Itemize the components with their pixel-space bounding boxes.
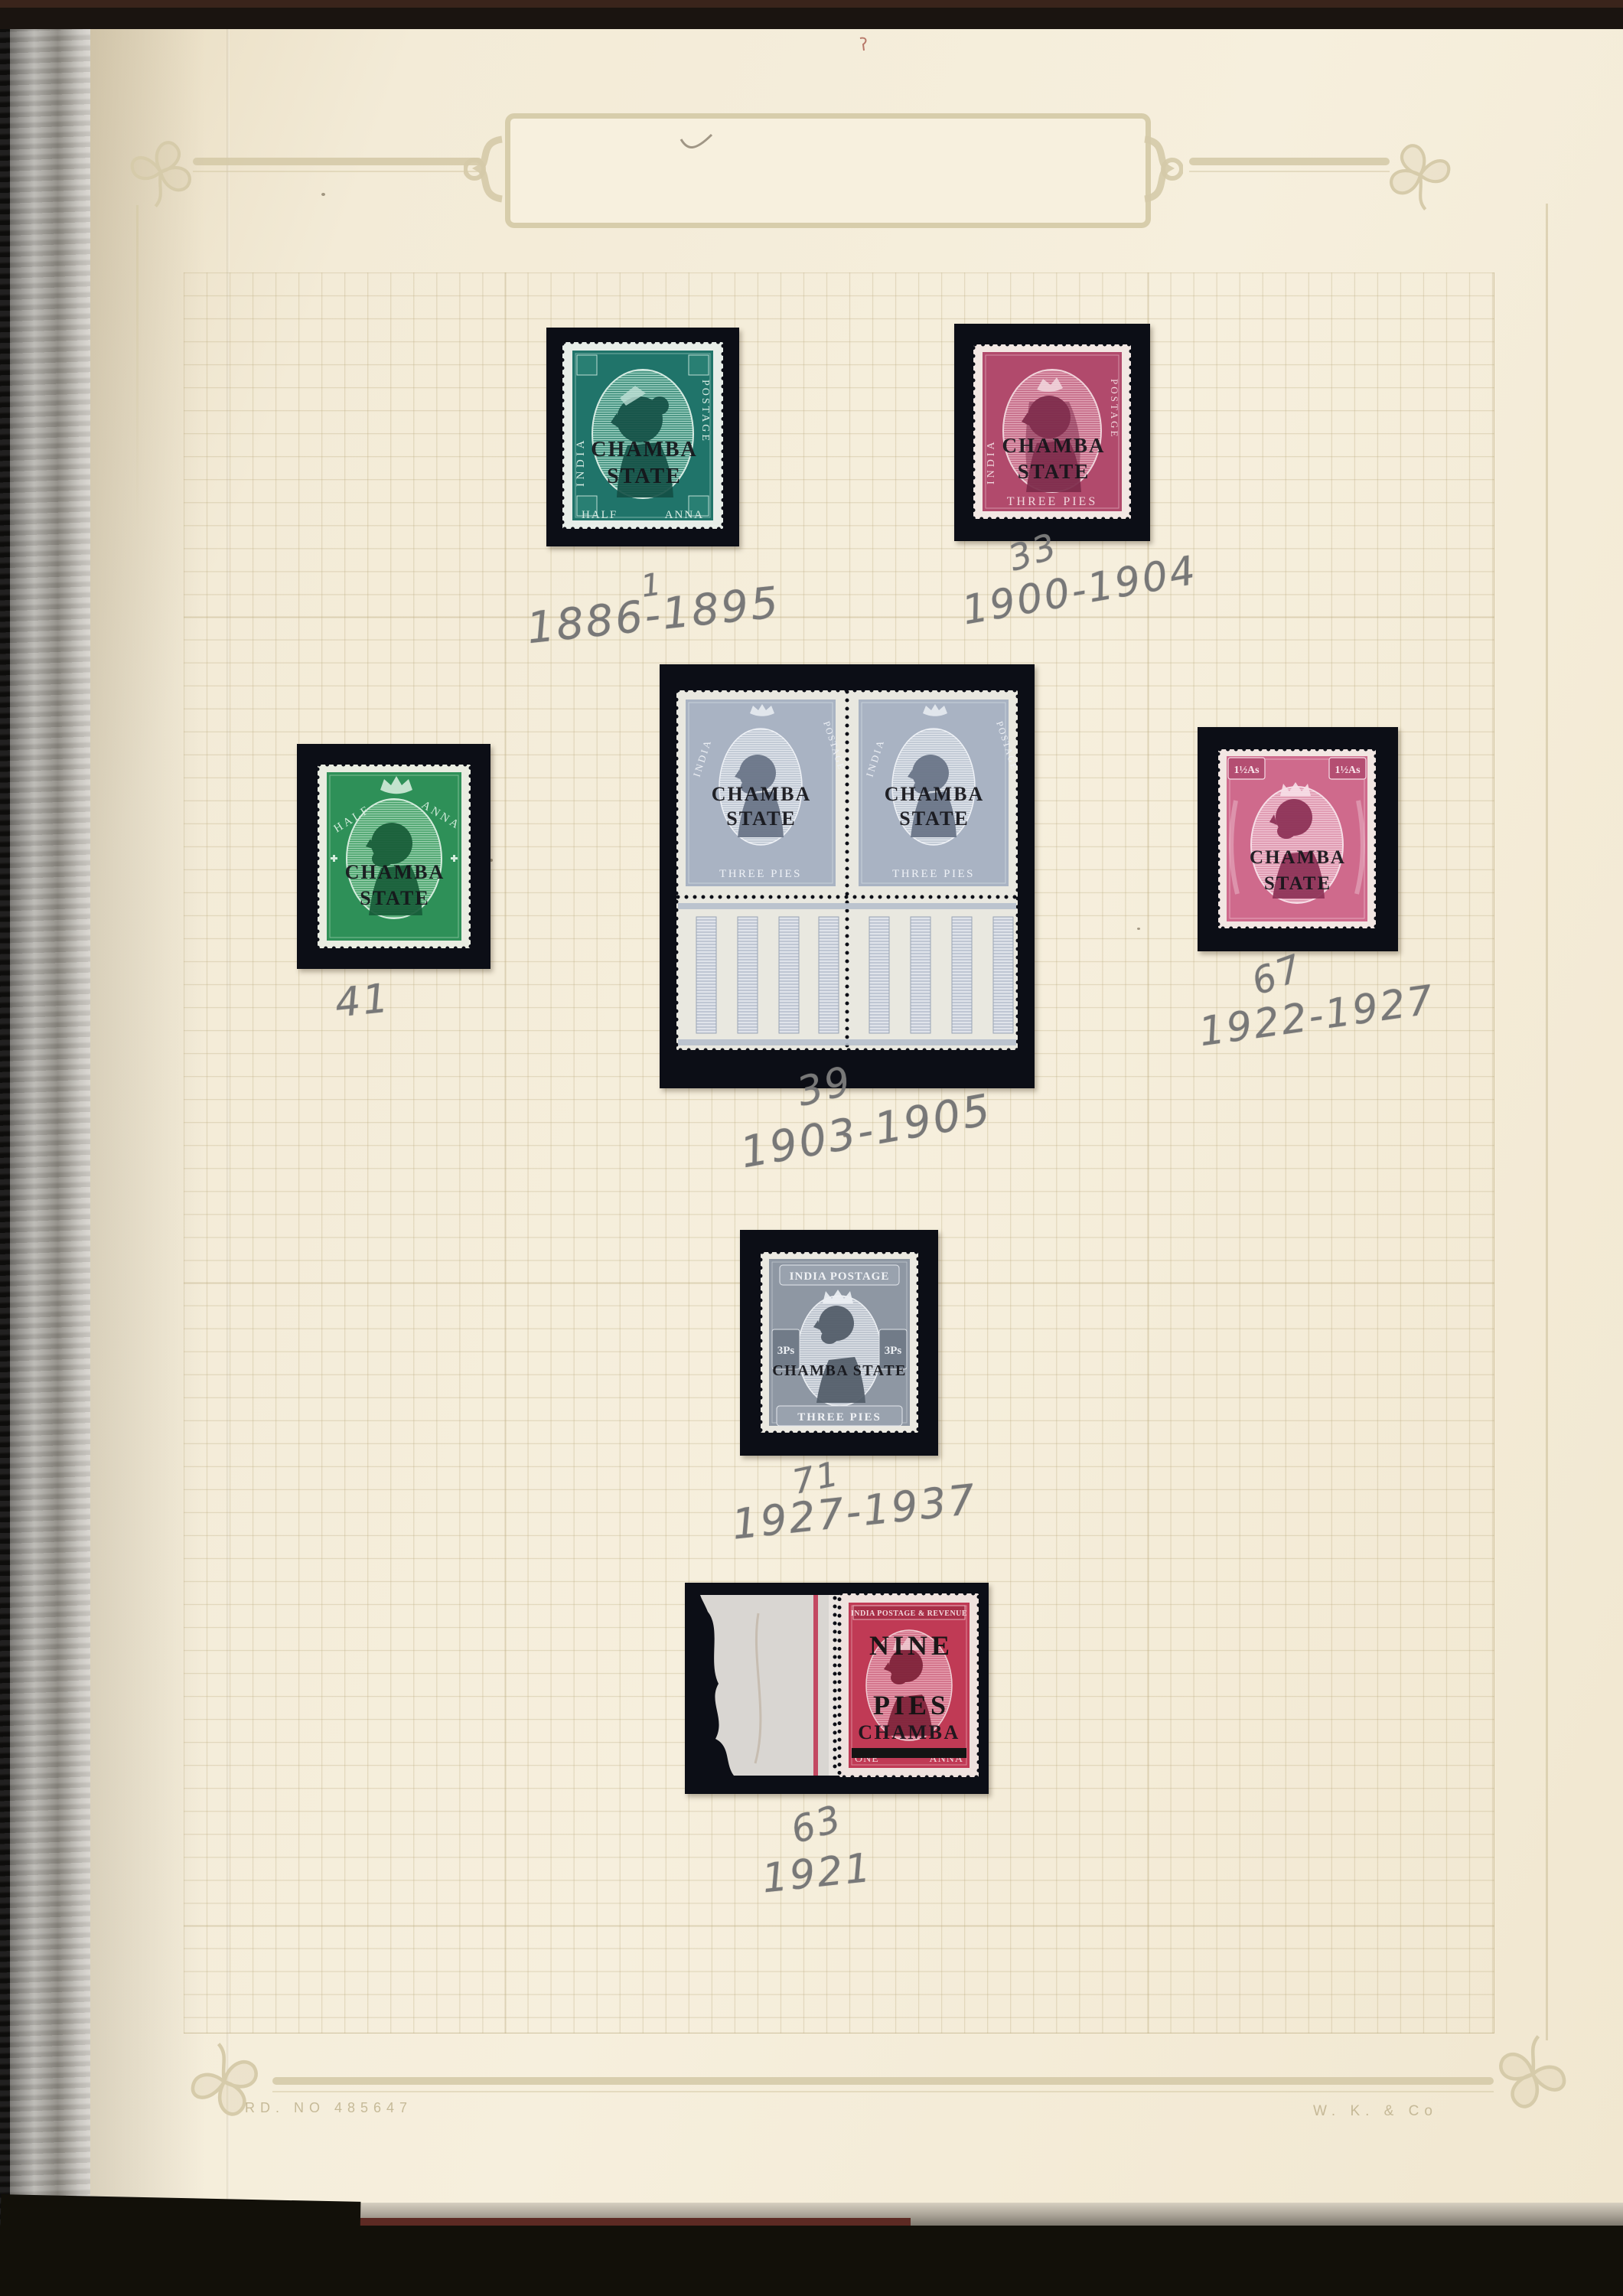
stamp-qv-half-anna: INDIA POSTAGE HALF ANNA CHAMBA STATE (560, 340, 725, 531)
stamp-text-side-left: INDIA (575, 437, 587, 487)
overprint-chamba: CHAMBA (885, 783, 984, 805)
stamp-text-bottom-left: HALF (582, 509, 618, 521)
stamp-text-top: INDIA POSTAGE & REVENUE (851, 1609, 967, 1618)
pencil-check-mark (680, 127, 715, 155)
stamp-text-denomination: THREE PIES (719, 868, 802, 880)
pair-stamp-right: INDIA POSTAGE THREE PIES CHAMBA STATE (859, 700, 1020, 886)
stamp-mount: INDIA POSTAGE 3Ps 3Ps CHAMBA STATE THREE… (740, 1230, 938, 1456)
stamp-text-bottom: INDIA POSTAGE & REVENUE (315, 762, 441, 765)
stamp-text-bottom: THREE PIES (797, 1411, 882, 1424)
value-text: 1½As (1335, 765, 1361, 776)
red-pencil-mark (859, 35, 869, 52)
stamp-text-bottom: ONE AND A HALF ANNAS (1216, 747, 1326, 749)
scroll-ornament-icon (1142, 135, 1183, 204)
overprint-state: STATE (726, 807, 796, 830)
overprint-state: STATE (899, 807, 969, 830)
overprint-chamba: CHAMBA (1002, 434, 1106, 457)
pair-stamp-left: INDIA POSTAGE THREE PIES CHAMBA STATE (686, 700, 847, 886)
obliterating-bar (852, 1748, 966, 1758)
border-band (1189, 158, 1390, 165)
value-text: 3Ps (885, 1345, 902, 1357)
value-text: 1½As (1234, 765, 1260, 776)
album-page-photo: RD. NO 485647 W. K. & Co (0, 0, 1623, 2296)
stamp-mount: HALF ANNA INDIA POSTAGE & REVENUE CHAMBA… (297, 744, 490, 969)
stamp-text-side-right: POSTAGE (699, 380, 711, 443)
overprint-state: STATE (360, 887, 429, 909)
value-text: 3Ps (777, 1345, 795, 1357)
overprint-state: STATE (1018, 460, 1090, 483)
stamp-kgv-one-and-half-annas: 1½As 1½As INDIA POSTAGE ONE AND A HALF A… (1216, 747, 1378, 931)
right-border-line (1546, 204, 1548, 2040)
photo-bottom-black-band (0, 2226, 1623, 2296)
stamp-text-bottom-right: ANNA (665, 509, 704, 521)
title-box (505, 113, 1151, 228)
border-band-thin (1189, 171, 1390, 172)
border-band (193, 158, 482, 165)
clover-icon (1382, 132, 1458, 216)
overprint-chamba: CHAMBA (1250, 847, 1346, 868)
overprint-chamba: CHAMBA (591, 438, 698, 461)
stamp-text-denomination: THREE PIES (1007, 495, 1097, 508)
border-band-thin (193, 171, 482, 172)
stamp-kevii-half-anna: HALF ANNA INDIA POSTAGE & REVENUE CHAMBA… (315, 762, 473, 951)
registration-mark: RD. NO 485647 (245, 2100, 412, 2116)
stamp-text-side-right: POSTAGE (1109, 379, 1120, 439)
annotation-number: 41 (333, 975, 393, 1026)
stamp-pair-kevii-three-pies: INDIA POSTAGE THREE PIES CHAMBA STATE (660, 664, 1035, 1088)
stamp-mount: INDIA POSTAGE & REVENUE NINE PIES CHAMBA… (685, 1583, 989, 1794)
binding-texture (0, 0, 90, 2296)
stamp-qv-three-pies: INDIA POSTAGE THREE PIES CHAMBA STATE (971, 342, 1133, 521)
album-maker-mark: W. K. & Co (1313, 2103, 1438, 2120)
clover-icon (122, 129, 199, 213)
stamp-mount: 1½As 1½As INDIA POSTAGE ONE AND A HALF A… (1198, 727, 1398, 951)
overprint-state: STATE (607, 465, 682, 488)
stamp-text-side-left: INDIA (986, 439, 997, 484)
stamp-mount: INDIA POSTAGE THREE PIES CHAMBA STATE (660, 664, 1035, 1088)
stamp-kgv-nine-pies: INDIA POSTAGE & REVENUE NINE PIES CHAMBA… (685, 1583, 989, 1794)
scroll-ornament-icon (464, 135, 505, 204)
bottom-border-band (272, 2077, 1494, 2085)
photo-top-black-band (0, 0, 1623, 29)
left-border-line (136, 205, 139, 534)
overprint-chamba: CHAMBA (345, 861, 445, 883)
overprint-chamba-state: CHAMBA STATE (772, 1362, 907, 1379)
overprint-pies: PIES (873, 1690, 950, 1720)
stamp-text-denomination: THREE PIES (892, 868, 975, 880)
overprint-chamba: CHAMBA (712, 783, 811, 805)
bottom-border-band-thin (272, 2091, 1494, 2092)
selvage-margin (700, 1595, 841, 1776)
stamp-mount: INDIA POSTAGE HALF ANNA CHAMBA STATE (546, 328, 739, 546)
stamp-text-top: INDIA POSTAGE (790, 1270, 890, 1283)
stamp-mount: INDIA POSTAGE THREE PIES CHAMBA STATE (954, 324, 1150, 541)
overprint-nine: NINE (869, 1630, 953, 1661)
clover-icon (1491, 2030, 1575, 2122)
overprint-state: STATE (1264, 873, 1331, 894)
stamp-kgv-three-pies: INDIA POSTAGE 3Ps 3Ps CHAMBA STATE THREE… (758, 1250, 921, 1435)
overprint-chamba: CHAMBA (858, 1721, 960, 1743)
